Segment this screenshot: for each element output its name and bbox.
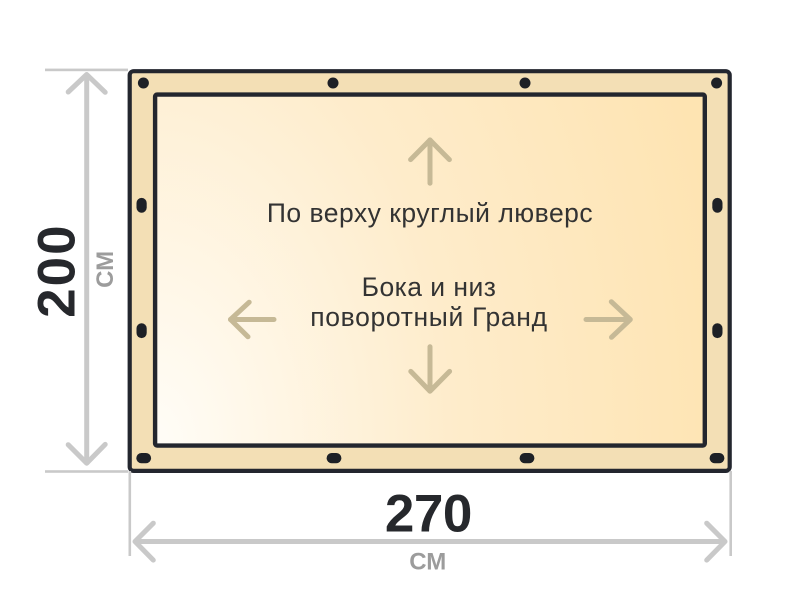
svg-text:СМ: СМ xyxy=(409,549,446,576)
svg-text:По верху круглый люверс: По верху круглый люверс xyxy=(267,198,593,228)
svg-text:поворотный Гранд: поворотный Гранд xyxy=(310,302,547,332)
svg-text:СМ: СМ xyxy=(92,251,119,288)
svg-text:200: 200 xyxy=(28,223,87,317)
svg-text:Бока и низ: Бока и низ xyxy=(362,272,497,302)
svg-text:270: 270 xyxy=(385,485,472,544)
